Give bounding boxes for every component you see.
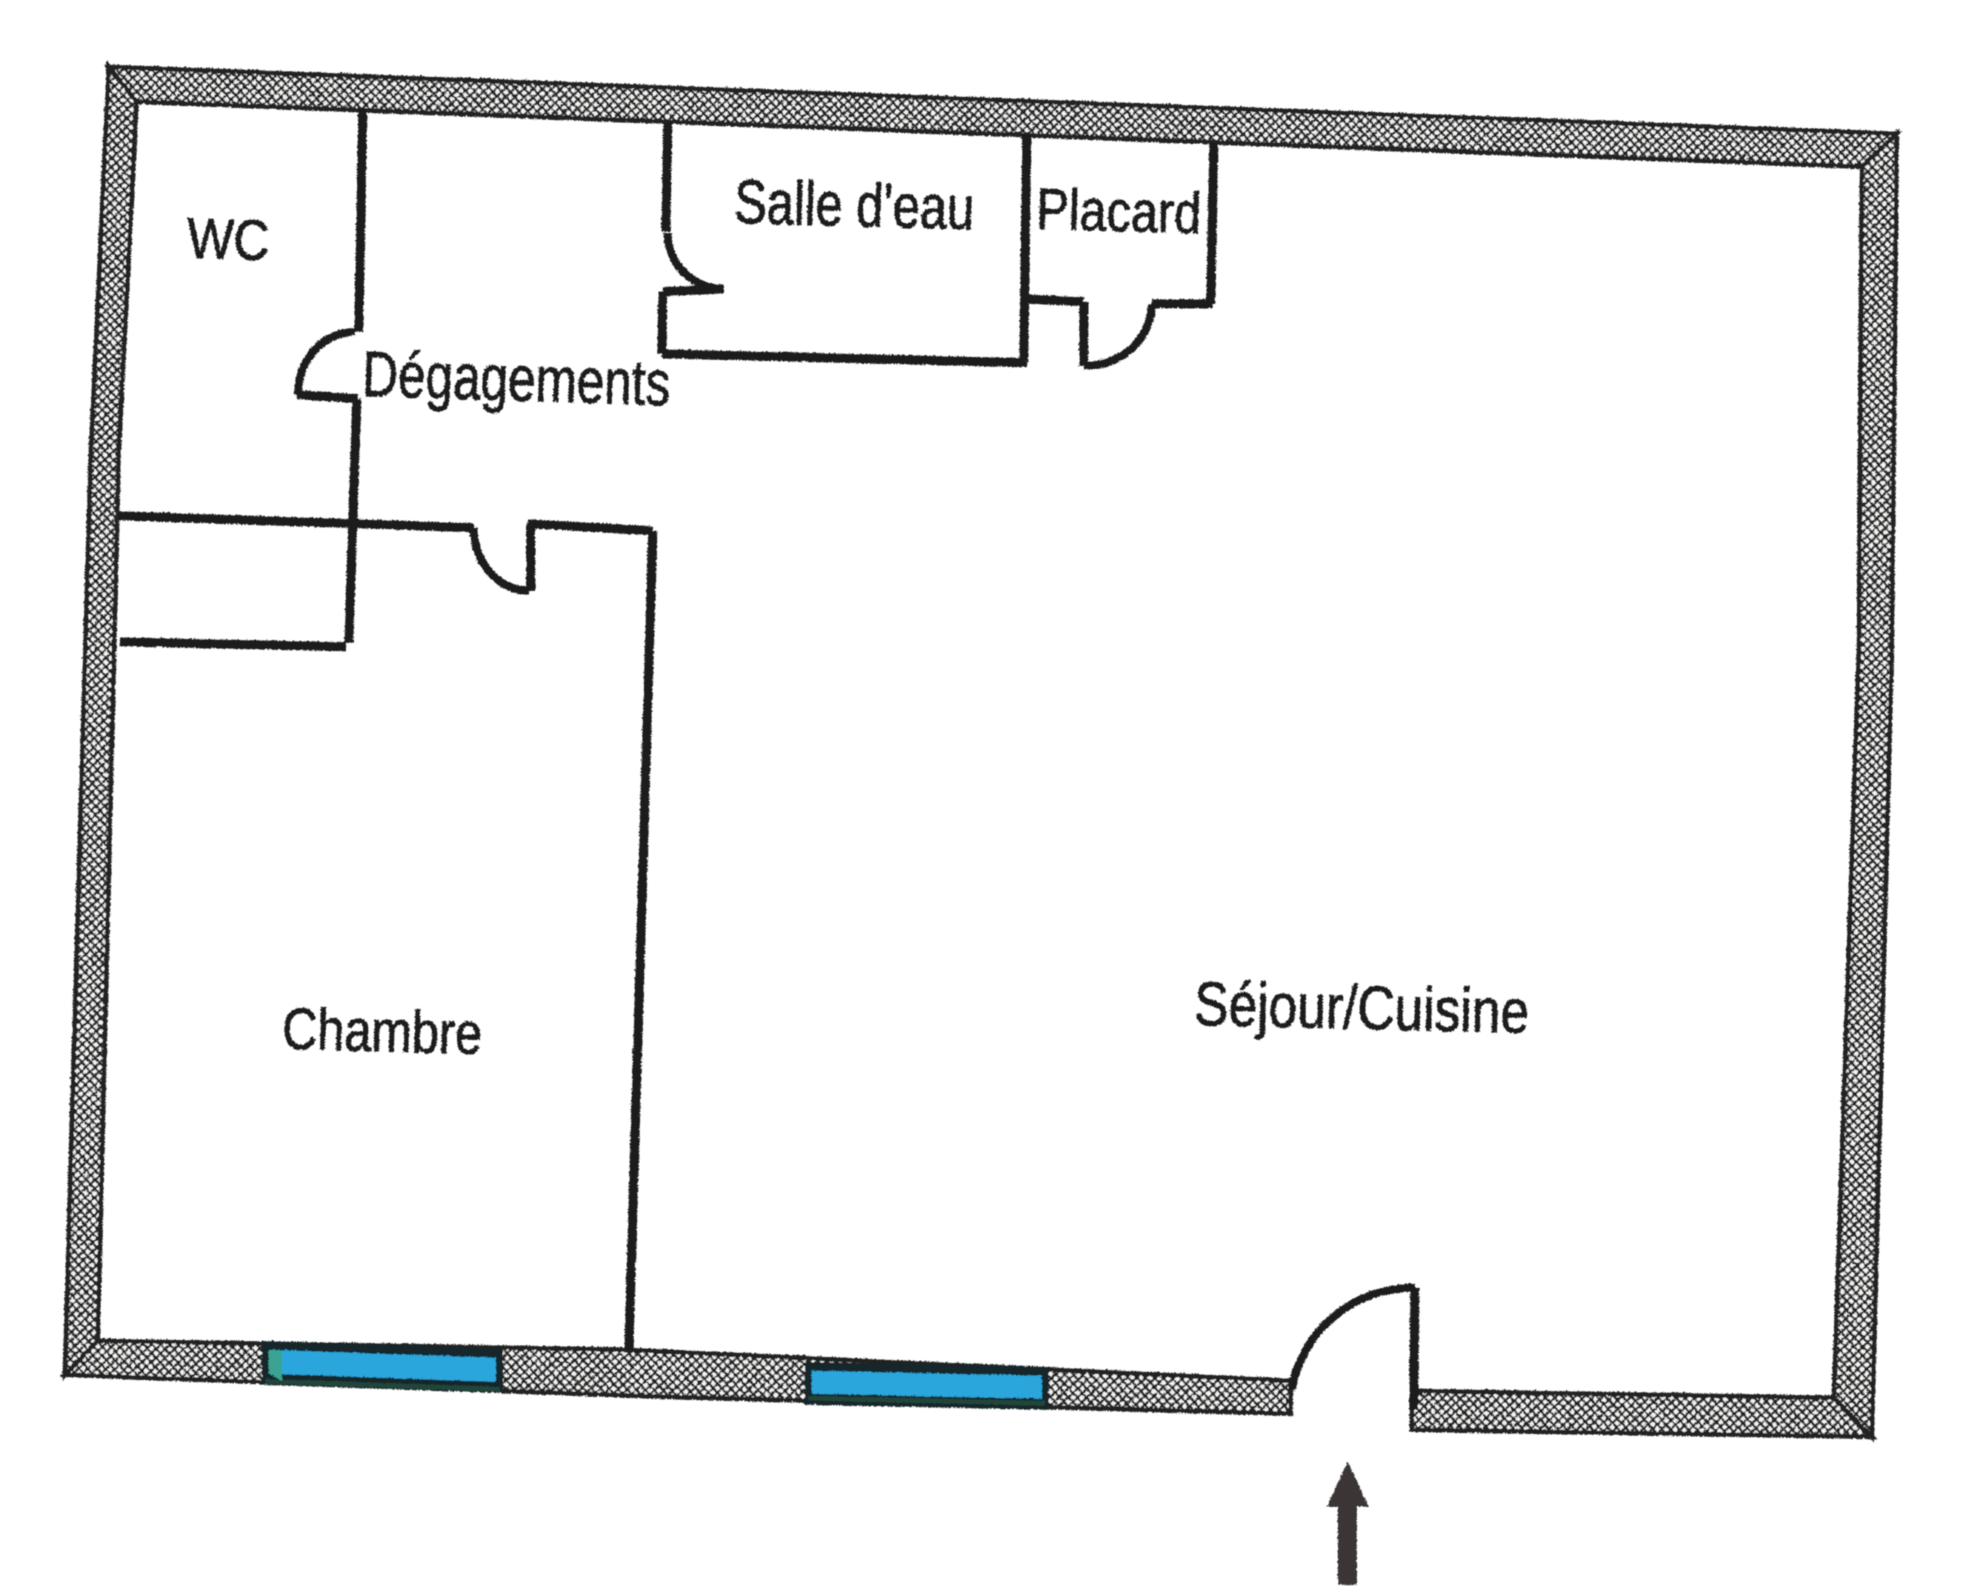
svg-text:Séjour/Cuisine: Séjour/Cuisine xyxy=(1193,969,1530,1046)
svg-text:Chambre: Chambre xyxy=(281,995,483,1066)
svg-text:Salle d'eau: Salle d'eau xyxy=(733,167,975,243)
svg-text:Placard: Placard xyxy=(1035,176,1202,246)
svg-text:WC: WC xyxy=(186,206,270,272)
svg-text:Dégagements: Dégagements xyxy=(361,337,671,419)
